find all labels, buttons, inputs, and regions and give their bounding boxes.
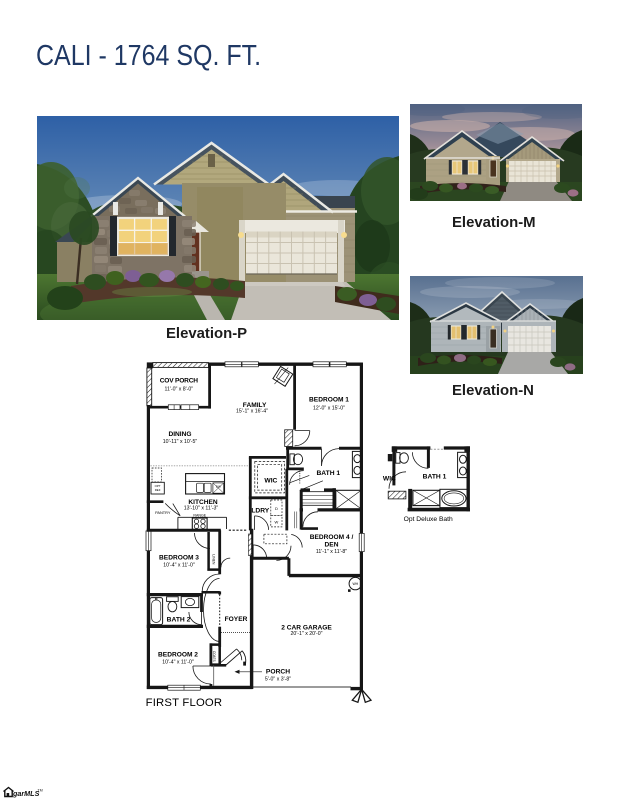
svg-text:WIC: WIC	[383, 476, 396, 483]
svg-text:LDRY: LDRY	[251, 507, 269, 514]
svg-text:BEDROOM 4 /: BEDROOM 4 /	[310, 534, 354, 541]
svg-text:LINEN: LINEN	[212, 554, 216, 565]
svg-text:garMLS: garMLS	[12, 789, 40, 798]
svg-text:FOYER: FOYER	[225, 616, 248, 623]
svg-text:DINING: DINING	[168, 431, 191, 438]
svg-text:W: W	[275, 520, 279, 525]
svg-text:PANTRY: PANTRY	[155, 510, 171, 515]
svg-text:WH: WH	[352, 582, 358, 586]
svg-text:BEDROOM 2: BEDROOM 2	[158, 652, 198, 659]
svg-text:TM: TM	[38, 789, 43, 793]
svg-text:13'-10" x 11'-3": 13'-10" x 11'-3"	[184, 505, 219, 511]
svg-text:COATS: COATS	[212, 651, 216, 662]
svg-text:RANGE: RANGE	[193, 513, 206, 517]
svg-text:BATH 1: BATH 1	[423, 474, 447, 481]
svg-text:11'-0" x 8'-0": 11'-0" x 8'-0"	[164, 386, 193, 392]
svg-text:FIRST FLOOR: FIRST FLOOR	[146, 697, 223, 709]
svg-text:BEDROOM 3: BEDROOM 3	[159, 554, 199, 561]
svg-text:Opt Deluxe Bath: Opt Deluxe Bath	[404, 516, 453, 523]
svg-text:COV PORCH: COV PORCH	[160, 377, 199, 384]
svg-text:DW: DW	[216, 485, 221, 489]
svg-text:15'-1" x 16'-4": 15'-1" x 16'-4"	[236, 408, 268, 414]
svg-text:D: D	[275, 506, 278, 511]
svg-text:10'-4" x 11'-0": 10'-4" x 11'-0"	[162, 660, 194, 666]
svg-text:REF: REF	[155, 488, 161, 492]
svg-text:10'-11" x 10'-5": 10'-11" x 10'-5"	[163, 439, 198, 445]
svg-text:BATH 2: BATH 2	[167, 617, 191, 624]
svg-text:5'-0" x 3'-8": 5'-0" x 3'-8"	[265, 676, 291, 682]
svg-text:10'-4" x 11'-0": 10'-4" x 11'-0"	[163, 562, 195, 568]
svg-text:12'-0" x 15'-0": 12'-0" x 15'-0"	[313, 406, 345, 412]
svg-text:WIC: WIC	[264, 478, 277, 485]
svg-text:11'-1" x 11'-8": 11'-1" x 11'-8"	[316, 549, 347, 555]
svg-text:PORCH: PORCH	[266, 669, 290, 676]
svg-text:BATH 1: BATH 1	[316, 470, 340, 477]
svg-text:20'-1" x 20'-0": 20'-1" x 20'-0"	[291, 631, 323, 637]
svg-text:BEDROOM 1: BEDROOM 1	[309, 397, 349, 404]
svg-text:DEN: DEN	[325, 541, 339, 548]
